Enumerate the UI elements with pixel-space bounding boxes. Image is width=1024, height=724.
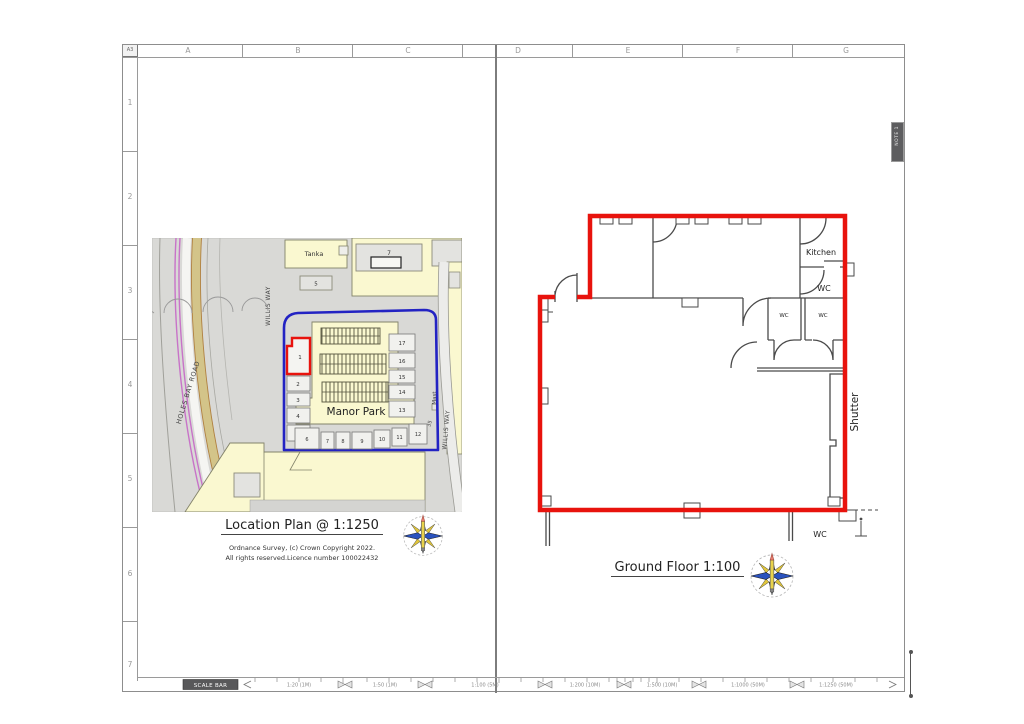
grid-tick <box>682 45 683 57</box>
scale-bar: SCALE BAR 1:20 (1M) 1:50 (1M) 1:100 (5M)… <box>137 677 904 691</box>
location-plan-map: HOLES BAY ROAD Tanka 7 5 WILLIS WAY Mast… <box>152 238 462 512</box>
grid-tick <box>242 45 243 57</box>
unit-label-14: 14 <box>399 390 406 396</box>
grid-row-4: 4 <box>123 380 137 389</box>
grid-row-3: 3 <box>123 286 137 295</box>
unit-label-10: 10 <box>379 437 385 443</box>
scale-labels: 1:20 (1M) 1:50 (1M) 1:100 (5M) 1:200 (10… <box>287 683 853 689</box>
unit-label-1: 1 <box>298 355 302 361</box>
grid-header-band: A B C D E F G <box>123 45 904 58</box>
scale-label-1-100: 1:100 (5M) <box>471 683 498 689</box>
room-label-wc-main: WC <box>817 284 831 293</box>
unit-interior <box>540 216 845 510</box>
unit-label-9: 9 <box>360 439 363 445</box>
scale-label-1-1250: 1:1250 (50M) <box>819 683 853 689</box>
grid-tick <box>123 339 137 340</box>
note-tag: NOTE 1 <box>891 122 904 162</box>
grid-tick <box>352 45 353 57</box>
grid-tick <box>123 151 137 152</box>
scale-label-1-200: 1:200 (10M) <box>570 683 601 689</box>
grid-row-6: 6 <box>123 569 137 578</box>
grid-row-1: 1 <box>123 98 137 107</box>
scale-ticks <box>255 678 877 683</box>
unit-label-11: 11 <box>396 435 402 441</box>
scale-arrow-left-icon <box>244 681 251 688</box>
scale-label-1-20: 1:20 (1M) <box>287 683 311 689</box>
map-label-bldg7: 7 <box>387 250 391 257</box>
site-name-label: Manor Park <box>327 406 387 418</box>
map-label-tanks: Tanka <box>304 250 324 258</box>
sheet-size-label: A3 <box>123 45 138 57</box>
room-label-wc-right: WC <box>818 313 827 319</box>
street-label-willis-way-left: WILLIS WAY <box>265 286 272 326</box>
scale-arrow-right-icon <box>889 681 896 688</box>
label-shutter: Shutter <box>849 392 861 432</box>
right-edge-ruler <box>910 652 911 696</box>
grid-tick <box>123 527 137 528</box>
unit-label-7: 7 <box>326 439 329 445</box>
unit-label-6: 6 <box>305 437 308 443</box>
scale-bar-title: SCALE BAR <box>194 683 227 689</box>
unit-label-17: 17 <box>399 341 406 347</box>
grid-tick <box>792 45 793 57</box>
grid-col-g: G <box>836 45 856 57</box>
grid-col-b: B <box>288 45 308 57</box>
room-label-wc-left: WC <box>779 313 788 319</box>
note-tag-label: NOTE 1 <box>895 126 900 146</box>
scale-label-1-1000: 1:1000 (50M) <box>731 683 765 689</box>
unit-label-4: 4 <box>296 414 300 420</box>
door-pivot-dot <box>860 518 863 521</box>
ground-floor-title: Ground Floor 1:100 <box>611 560 745 577</box>
unit-label-16: 16 <box>399 359 406 365</box>
grid-tick <box>123 245 137 246</box>
unit-label-12: 12 <box>415 432 421 438</box>
ground-floor-plan: Kitchen WC WC WC Shutter WC <box>525 195 910 560</box>
compass-rose-icon <box>400 513 446 559</box>
unit-label-2: 2 <box>296 382 300 388</box>
hatched-strips <box>320 328 388 402</box>
room-label-wc-outside: WC <box>813 530 827 539</box>
grid-col-c: C <box>398 45 418 57</box>
grid-row-2: 2 <box>123 192 137 201</box>
map-buildings-top <box>285 238 462 296</box>
grid-col-d: D <box>508 45 528 57</box>
scale-label-1-500: 1:500 (10M) <box>647 683 678 689</box>
grid-tick <box>462 45 463 57</box>
grid-col-e: E <box>618 45 638 57</box>
grid-row-5: 5 <box>123 474 137 483</box>
grid-tick <box>572 45 573 57</box>
grid-tick <box>123 621 137 622</box>
map-label-bldg5: 5 <box>314 282 318 288</box>
unit-label-3: 3 <box>296 398 300 404</box>
grid-col-f: F <box>728 45 748 57</box>
unit-label-13: 13 <box>399 408 406 414</box>
grid-row-band: 1 2 3 4 5 6 7 <box>123 57 138 681</box>
room-label-kitchen: Kitchen <box>806 248 836 257</box>
sheet-half-divider <box>495 45 497 693</box>
compass-rose-icon <box>747 551 797 601</box>
unit-label-15: 15 <box>399 375 406 381</box>
scale-label-1-50: 1:50 (1M) <box>373 683 397 689</box>
unit-label-8: 8 <box>341 439 344 445</box>
grid-col-a: A <box>178 45 198 57</box>
grid-tick <box>123 433 137 434</box>
grid-row-7: 7 <box>123 660 137 669</box>
scale-bar-graphic: SCALE BAR 1:20 (1M) 1:50 (1M) 1:100 (5M)… <box>137 678 906 691</box>
location-plan-title: Location Plan @ 1:1250 <box>221 518 383 535</box>
